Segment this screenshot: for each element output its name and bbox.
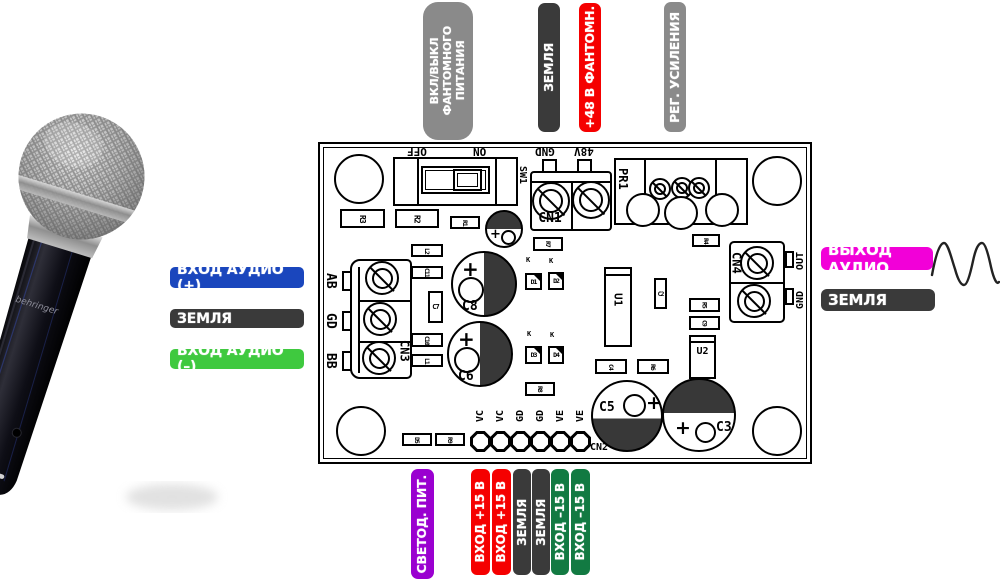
cn3-screw-2 — [363, 302, 397, 336]
resistor-r7: R7 — [533, 237, 563, 251]
ic-u2: U2 — [689, 335, 716, 379]
cn2-pad-2 — [490, 431, 511, 452]
label-top-ground: ЗЕМЛЯ — [538, 3, 560, 132]
label-48v-phantom: +48 В ФАНТОМН. — [579, 3, 601, 132]
capacitor-c8: + C8 — [451, 251, 517, 317]
resistor-r3: R3 — [340, 209, 385, 228]
silk-pr1: PR1 — [616, 160, 630, 198]
mic-shadow — [126, 484, 218, 510]
label-audio-in-minus: ВХОД АУДИО (–) — [170, 349, 304, 369]
pr1-pin-big-1 — [626, 193, 660, 227]
label-text: ВКЛ/ВЫКЛ ФАНТОМНОГО ПИТАНИЯ — [429, 26, 468, 115]
silk-cn4-gnd: GND — [794, 285, 807, 315]
capacitor-c4: C4 — [595, 359, 627, 374]
silk-sw1: SW1 — [516, 159, 529, 191]
cn2-pad-1 — [470, 431, 491, 452]
cn1-screw-2 — [572, 181, 610, 219]
label-led-power: СВЕТОД. ПИТ. — [411, 469, 434, 579]
label-phantom-switch: ВКЛ/ВЫКЛ ФАНТОМНОГО ПИТАНИЯ — [423, 2, 473, 140]
diode-d2: D2 — [548, 272, 564, 290]
pr1-pin-big-3 — [705, 193, 739, 227]
silk-u2: U2 — [692, 344, 713, 358]
cn3-screw-1 — [365, 261, 399, 295]
silk-out: OUT — [794, 246, 807, 276]
label-audio-out: ВЫХОД АУДИО — [821, 247, 933, 270]
silk-ab: AB — [322, 267, 339, 295]
silk-gd1: GD — [513, 403, 527, 429]
label-plus15v-1: ВХОД +15 В — [471, 469, 490, 575]
resistor-r9: R9 — [435, 433, 465, 446]
silk-gd2: GD — [533, 403, 547, 429]
label-text: +48 В ФАНТОМН. — [583, 6, 598, 129]
silk-cn3: CN3 — [398, 330, 411, 372]
silk-cn2: CN2 — [586, 441, 612, 453]
pcb-board: OFF ON SW1 GND 48V CN1 PR1 R4 — [318, 142, 812, 464]
label-minus15v-1: ВХОД –15 В — [551, 469, 569, 575]
capacitor-c2: C2 — [654, 278, 667, 309]
label-minus15v-2: ВХОД –15 В — [571, 469, 590, 575]
capacitor-c1: + — [485, 210, 523, 248]
label-right-ground: ЗЕМЛЯ — [821, 289, 935, 311]
cn4-tab-gnd — [785, 288, 794, 305]
cn2-pad-3 — [510, 431, 531, 452]
silk-cn4: CN4 — [730, 244, 743, 282]
silk-k: K — [550, 331, 554, 339]
capacitor-c6: + C6 — [447, 321, 513, 387]
label-text: РЕГ. УСИЛЕНИЯ — [668, 12, 683, 123]
cn4-screw-1 — [740, 246, 774, 280]
diode-d4: D4 — [548, 346, 564, 364]
silk-on: ON — [468, 145, 492, 157]
resistor-r2: R2 — [395, 209, 439, 228]
silk-ve1: VE — [553, 403, 567, 429]
switch-knob — [453, 169, 482, 191]
resistor-r4: R4 — [692, 234, 720, 247]
label-text: ЗЕМЛЯ — [542, 43, 557, 92]
label-plus15v-2: ВХОД +15 В — [492, 469, 511, 575]
label-text: ВХОД АУДИО (+) — [177, 262, 304, 294]
sine-wave-icon — [930, 237, 1000, 291]
cn4-screw-2 — [737, 284, 771, 318]
silk-k: K — [526, 256, 530, 264]
mounting-hole-tl — [334, 154, 384, 204]
resistor-r5: R5 — [689, 298, 720, 312]
mounting-hole-tr — [752, 156, 802, 206]
diode-d1: D1 — [525, 273, 542, 290]
label-text: ВХОД +15 В — [473, 481, 487, 563]
silk-bb: BB — [322, 347, 339, 375]
silk-gd: GD — [322, 307, 339, 335]
inductor-l1: L1 — [411, 354, 443, 367]
resistor-r1: R1 — [450, 216, 480, 229]
mounting-hole-br — [752, 406, 802, 456]
label-text: ЗЕМЛЯ — [177, 311, 232, 327]
silk-ve2: VE — [573, 403, 587, 429]
silk-vc2: VC — [493, 403, 507, 429]
silk-gnd: GND — [528, 145, 562, 158]
label-text: ЗЕМЛЯ — [828, 291, 887, 309]
label-gain-control: РЕГ. УСИЛЕНИЯ — [664, 2, 686, 132]
label-bottom-ground-2: ЗЕМЛЯ — [532, 469, 550, 575]
pr1-pin-small-3 — [688, 177, 710, 199]
mic-body — [0, 226, 95, 501]
silk-u1: U1 — [610, 283, 626, 317]
silk-48v: 48V — [567, 145, 601, 158]
ic-u1: U1 — [604, 267, 632, 347]
label-text: ВХОД +15 В — [494, 481, 508, 563]
cn2-pad-5 — [550, 431, 571, 452]
label-text: ВЫХОД АУДИО — [828, 241, 933, 277]
label-text: ВХОД АУДИО (–) — [177, 343, 304, 375]
pr1-pin-big-2 — [664, 196, 698, 230]
capacitor-c11: C11 — [411, 266, 443, 279]
capacitor-c3: + C3 — [662, 378, 736, 452]
capacitor-c9: C9 — [689, 316, 720, 330]
label-text: СВЕТОД. ПИТ. — [415, 475, 430, 573]
silk-off: OFF — [403, 145, 431, 157]
label-text: ЗЕМЛЯ — [534, 499, 548, 546]
silk-cn1: CN1 — [533, 210, 567, 226]
capacitor-c7: C7 — [428, 291, 443, 323]
cn3-screw-3 — [362, 341, 396, 375]
cn2-pad-4 — [530, 431, 551, 452]
pinout-diagram: behringer ВКЛ/ВЫКЛ ФАНТОМНОГО ПИТАНИЯ ЗЕ… — [0, 0, 1000, 581]
label-left-ground: ЗЕМЛЯ — [170, 309, 304, 328]
silk-vc1: VC — [473, 403, 487, 429]
silk-k: K — [549, 257, 553, 265]
resistor-r8: R8 — [525, 382, 555, 396]
diode-d3: D3 — [525, 346, 542, 364]
label-text: ЗЕМЛЯ — [515, 499, 529, 546]
resistor-r6: R6 — [637, 359, 669, 374]
label-text: ВХОД –15 В — [553, 483, 567, 561]
inductor-l2: L2 — [411, 244, 443, 257]
capacitor-c10: C10 — [411, 333, 443, 347]
label-text: ВХОД –15 В — [573, 483, 587, 561]
cn4-tab-out — [785, 251, 794, 268]
mounting-hole-bl — [336, 406, 386, 456]
diode-d5: D5 — [402, 433, 432, 446]
label-audio-in-plus: ВХОД АУДИО (+) — [170, 267, 304, 288]
label-bottom-ground-1: ЗЕМЛЯ — [513, 469, 531, 575]
silk-k: K — [527, 330, 531, 338]
